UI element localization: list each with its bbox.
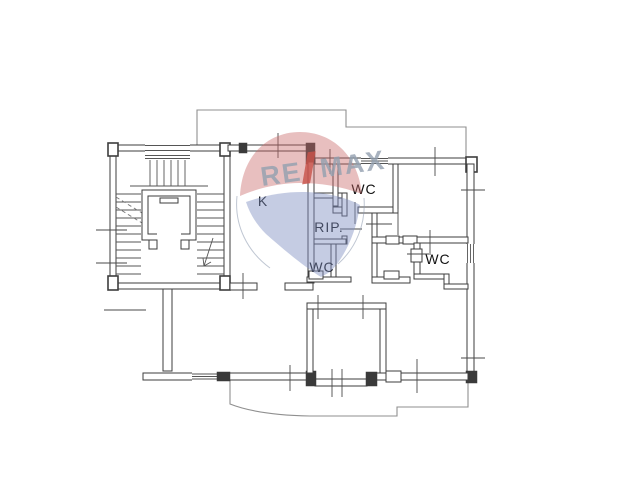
remax-wordmark-re: RE	[259, 156, 304, 191]
stairwell-window	[145, 144, 190, 159]
bedroom-walls	[307, 303, 386, 373]
elevator-shaft	[142, 190, 196, 249]
pillar-icon	[217, 372, 230, 381]
stair-treads-left	[116, 194, 141, 274]
wc-right-door	[411, 249, 422, 262]
stairwell-bottom-wall	[110, 283, 230, 289]
corridor-door	[386, 236, 399, 244]
remax-balloon-bottom	[246, 192, 360, 277]
elevator-vent	[160, 198, 178, 203]
bottom-wall-recess	[306, 371, 377, 386]
kitchen-bottom-wall	[230, 283, 257, 290]
stairwell-right-wall	[224, 145, 230, 289]
kitchen-bottom-wall	[285, 283, 313, 290]
bottom-wall	[143, 373, 468, 380]
pillar-icon	[220, 276, 230, 290]
right-wall	[467, 164, 474, 379]
window-bottom-left	[192, 372, 217, 381]
lower-corridor-wall	[163, 289, 172, 371]
pillar-icon	[239, 143, 247, 153]
stairwell-left-wall	[110, 145, 116, 289]
room-label-wc-right: WC	[425, 251, 450, 267]
pillar-icon	[366, 372, 377, 386]
pillar-icon	[108, 276, 118, 290]
floor-plan-canvas: K WC RIP. WC WC RE MAX	[0, 0, 633, 482]
pillar-icon	[108, 143, 118, 156]
hall-door	[384, 271, 399, 279]
floor-plan-page: K WC RIP. WC WC RE MAX	[0, 0, 633, 482]
window-right	[466, 244, 475, 263]
balcony-door	[386, 371, 401, 382]
stairwell	[108, 143, 230, 290]
stair-treads-top	[130, 160, 208, 186]
remax-watermark: RE MAX	[237, 132, 388, 277]
